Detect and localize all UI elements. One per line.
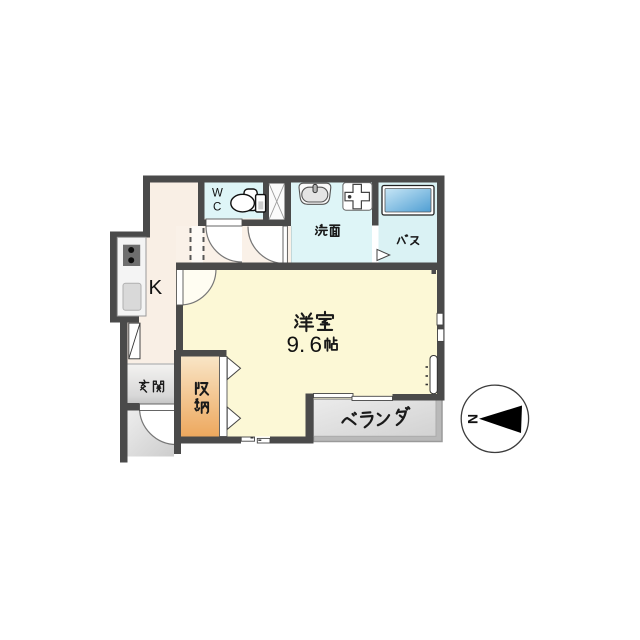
svg-text:N: N (465, 414, 481, 424)
svg-text:6: 6 (310, 332, 323, 357)
svg-text:W: W (212, 188, 223, 200)
svg-text:K: K (149, 276, 163, 299)
svg-text:9: 9 (287, 332, 300, 357)
svg-text:C: C (213, 202, 221, 214)
svg-text:.: . (299, 332, 305, 357)
